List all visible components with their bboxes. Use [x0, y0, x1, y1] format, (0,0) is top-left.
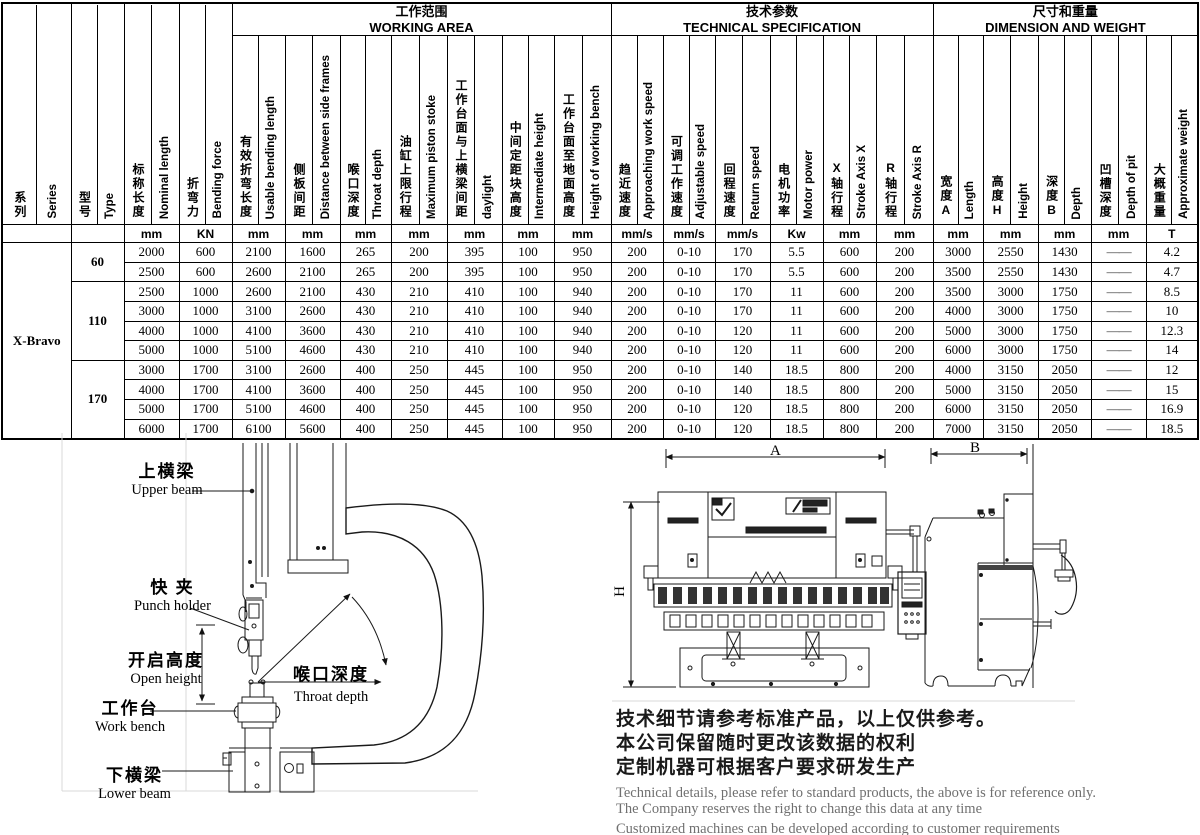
group-header-cn: 工作范围: [233, 4, 611, 20]
data-cell: 18.5: [770, 399, 823, 419]
unit-cell: mm: [232, 225, 285, 243]
header-pair: 深度BDepth: [1039, 36, 1091, 224]
type-cell: 60: [71, 243, 124, 282]
header-pair: 标称长度Nominal length: [125, 5, 179, 224]
col-header-en: daylight: [483, 175, 495, 219]
spec-table: 系列Series型号Type标称长度Nominal length折弯力Bendi…: [1, 2, 1199, 440]
data-cell: 2500: [124, 282, 179, 302]
data-cell: 2500: [124, 262, 179, 282]
data-cell: 3000: [124, 360, 179, 380]
data-cell: 5.5: [770, 262, 823, 282]
data-cell: 210: [391, 282, 447, 302]
data-cell: 11: [770, 301, 823, 321]
data-cell: 4.7: [1146, 262, 1198, 282]
data-cell: 395: [447, 262, 502, 282]
unit-cell: Kw: [770, 225, 823, 243]
data-cell: 100: [502, 380, 554, 400]
series-cell: X-Bravo: [2, 243, 71, 439]
data-cell: 410: [447, 282, 502, 302]
data-cell: 400: [340, 399, 391, 419]
data-cell: 100: [502, 301, 554, 321]
data-cell: 400: [340, 380, 391, 400]
unit-cell: mm: [285, 225, 340, 243]
data-cell: 15: [1146, 380, 1198, 400]
data-cell: 950: [554, 243, 611, 263]
data-cell: 0-10: [663, 301, 715, 321]
data-cell: 4100: [232, 380, 285, 400]
header-pair: 宽度ALength: [934, 36, 983, 224]
col-header-en: Type: [105, 193, 117, 219]
data-cell: 3100: [232, 360, 285, 380]
data-cell: 5100: [232, 399, 285, 419]
data-cell: 4000: [933, 360, 983, 380]
label-open-height-en: Open height: [126, 671, 206, 688]
col-header-cn: 折弯力: [186, 177, 199, 219]
header-pair: 凹槽深度Depth of pit: [1092, 36, 1146, 224]
group-header-en: DIMENSION AND WEIGHT: [934, 20, 1198, 36]
col-header-3: 折弯力Bending force: [179, 3, 232, 225]
unit-cell: mm/s: [663, 225, 715, 243]
unit-cell: [71, 225, 124, 243]
col-header-cn: 可调工作速度: [670, 135, 683, 219]
data-cell: 600: [179, 243, 232, 263]
data-cell: 100: [502, 282, 554, 302]
col-header-5: 侧板间距Distance between side frames: [285, 36, 340, 225]
data-cell: 3500: [933, 282, 983, 302]
col-header-en: Height: [1019, 183, 1031, 219]
data-cell: 0-10: [663, 262, 715, 282]
unit-cell: mm: [447, 225, 502, 243]
header-pair: 工作台面至地面高度Height of working bench: [555, 36, 611, 224]
data-cell: 3000: [124, 301, 179, 321]
data-cell: 1750: [1038, 321, 1091, 341]
data-cell: 2600: [232, 282, 285, 302]
col-header-cn: 深度B: [1045, 175, 1058, 219]
unit-cell: mm: [1038, 225, 1091, 243]
front-view-drawing: [623, 449, 926, 687]
data-cell: 2000: [124, 243, 179, 263]
col-header-cn: 宽度A: [939, 175, 952, 219]
data-cell: 600: [823, 282, 876, 302]
data-cell: 200: [391, 243, 447, 263]
data-cell: 170: [715, 262, 770, 282]
col-header-en: Usable bending length: [266, 96, 278, 219]
data-cell: 3000: [983, 301, 1038, 321]
unit-cell: mm: [502, 225, 554, 243]
header-pair: 系列Series: [3, 5, 71, 224]
data-cell: 170: [715, 243, 770, 263]
label-work-bench-en: Work bench: [95, 719, 165, 736]
data-cell: 1750: [1038, 341, 1091, 361]
dim-h-label: H: [612, 586, 629, 597]
label-work-bench: 工作台 Work bench: [95, 694, 165, 736]
data-cell: 6000: [933, 341, 983, 361]
data-cell: ——: [1091, 243, 1146, 263]
col-header-cn: 工作台面至地面高度: [562, 93, 575, 219]
data-cell: 3150: [983, 360, 1038, 380]
data-cell: 5000: [124, 341, 179, 361]
data-cell: 200: [876, 243, 933, 263]
clamp-teeth: [658, 587, 889, 604]
data-cell: 18.5: [770, 380, 823, 400]
data-cell: 4000: [933, 301, 983, 321]
col-header-14: 电机功率Motor power: [770, 36, 823, 225]
group-header-0: 工作范围WORKING AREA: [232, 3, 611, 36]
group-header-cn: 技术参数: [612, 4, 933, 20]
data-cell: 200: [611, 399, 663, 419]
data-cell: 3600: [285, 380, 340, 400]
dim-b-label: B: [970, 440, 980, 457]
data-cell: 5.5: [770, 243, 823, 263]
col-header-cn: 型号: [78, 191, 91, 219]
data-cell: 100: [502, 321, 554, 341]
data-cell: 14: [1146, 341, 1198, 361]
data-cell: 2050: [1038, 399, 1091, 419]
col-header-cn: R轴行程: [884, 161, 897, 219]
note-cn-line: 本公司保留随时更改该数据的权利: [616, 732, 1096, 756]
col-header-en: Series: [48, 184, 60, 219]
col-header-21: 大概重量Approximate weight: [1146, 36, 1198, 225]
data-cell: 210: [391, 321, 447, 341]
data-cell: 430: [340, 301, 391, 321]
data-cell: 4000: [124, 380, 179, 400]
data-cell: 200: [611, 341, 663, 361]
data-cell: 2100: [285, 282, 340, 302]
header-pair: 高度HHeight: [984, 36, 1038, 224]
label-lower-beam-cn: 下横梁: [97, 761, 172, 786]
unit-cell: mm: [391, 225, 447, 243]
unit-cell: mm: [124, 225, 179, 243]
side-view-drawing: [925, 444, 1076, 688]
col-header-10: 工作台面至地面高度Height of working bench: [554, 36, 611, 225]
col-header-15: X轴行程Stroke Axis X: [823, 36, 876, 225]
label-punch-holder-en: Punch holder: [130, 598, 215, 615]
header-pair: 油缸上限行程Maximum piston stoke: [392, 36, 447, 224]
header-pair: 可调工作速度Adjustable speed: [664, 36, 715, 224]
group-header-en: TECHNICAL SPECIFICATION: [612, 20, 933, 36]
col-header-6: 喉口深度Throat depth: [340, 36, 391, 225]
note-cn-line: 定制机器可根据客户要求研发生产: [616, 756, 1096, 780]
header-pair: 侧板间距Distance between side frames: [286, 36, 340, 224]
data-cell: 140: [715, 360, 770, 380]
data-cell: 200: [611, 321, 663, 341]
label-lower-beam-en: Lower beam: [97, 786, 172, 803]
data-cell: 4100: [232, 321, 285, 341]
data-cell: 210: [391, 301, 447, 321]
data-cell: 100: [502, 262, 554, 282]
data-cell: 5100: [232, 341, 285, 361]
data-cell: 4600: [285, 399, 340, 419]
data-cell: 410: [447, 321, 502, 341]
label-throat-depth-cn: 喉口深度: [288, 660, 374, 685]
col-header-cn: 回程速度: [722, 163, 735, 219]
col-header-13: 回程速度Return speed: [715, 36, 770, 225]
label-punch-holder: 快 夹 Punch holder: [130, 573, 215, 615]
unit-cell: T: [1146, 225, 1198, 243]
data-cell: 600: [823, 262, 876, 282]
data-cell: 200: [876, 380, 933, 400]
data-cell: 940: [554, 301, 611, 321]
data-cell: 3150: [983, 380, 1038, 400]
col-header-cn: 有效折弯长度: [239, 135, 252, 219]
data-cell: 0-10: [663, 341, 715, 361]
data-cell: 1000: [179, 301, 232, 321]
col-header-en: Adjustable speed: [696, 124, 708, 219]
col-header-cn: 侧板间距: [292, 163, 305, 219]
data-cell: 3500: [933, 262, 983, 282]
data-cell: 3000: [983, 321, 1038, 341]
col-header-en: Return speed: [751, 146, 763, 220]
data-cell: 3600: [285, 321, 340, 341]
col-header-en: Depth of pit: [1127, 155, 1139, 219]
data-cell: 1750: [1038, 282, 1091, 302]
col-header-16: R轴行程Stroke Axis R: [876, 36, 933, 225]
data-cell: 12: [1146, 360, 1198, 380]
col-header-cn: 高度H: [991, 175, 1004, 219]
data-cell: 2100: [232, 243, 285, 263]
label-throat-depth: 喉口深度 Throat depth: [288, 660, 374, 706]
data-cell: 12.3: [1146, 321, 1198, 341]
data-cell: 3150: [983, 399, 1038, 419]
data-cell: 250: [391, 360, 447, 380]
unit-cell: mm: [983, 225, 1038, 243]
note-cn-line: 技术细节请参考标准产品，以上仅供参考。: [616, 708, 1096, 732]
unit-cell: mm: [823, 225, 876, 243]
data-cell: 100: [502, 243, 554, 263]
data-cell: 2550: [983, 243, 1038, 263]
header-pair: 喉口深度Throat depth: [341, 36, 391, 224]
dim-a-label: A: [770, 443, 781, 460]
col-header-en: Approaching work speed: [644, 82, 656, 219]
data-cell: 265: [340, 262, 391, 282]
data-cell: 950: [554, 380, 611, 400]
data-cell: 410: [447, 341, 502, 361]
col-header-cn: 油缸上限行程: [399, 135, 412, 219]
col-header-en: Height of working bench: [591, 85, 603, 219]
col-header-0: 系列Series: [2, 3, 71, 225]
note-en-line: Technical details, please refer to stand…: [616, 785, 1096, 801]
col-header-en: Stroke Axis X: [857, 145, 869, 219]
data-cell: 1430: [1038, 262, 1091, 282]
data-cell: 11: [770, 321, 823, 341]
col-header-cn: 标称长度: [131, 163, 144, 219]
col-header-cn: 喉口深度: [346, 163, 359, 219]
unit-cell: [2, 225, 71, 243]
col-header-en: Approximate weight: [1179, 109, 1191, 219]
data-cell: 5000: [933, 380, 983, 400]
lower-clamp-teeth: [670, 615, 872, 627]
data-cell: 0-10: [663, 282, 715, 302]
data-cell: 100: [502, 341, 554, 361]
col-header-en: Intermediate height: [535, 113, 547, 219]
data-cell: 120: [715, 341, 770, 361]
col-header-cn: 系列: [13, 191, 26, 219]
data-cell: 100: [502, 360, 554, 380]
unit-cell: mm: [933, 225, 983, 243]
col-header-1: 型号Type: [71, 3, 124, 225]
col-header-11: 趋近速度Approaching work speed: [611, 36, 663, 225]
data-cell: 940: [554, 341, 611, 361]
data-cell: 200: [876, 341, 933, 361]
data-cell: ——: [1091, 321, 1146, 341]
data-cell: 200: [876, 262, 933, 282]
data-cell: ——: [1091, 399, 1146, 419]
header-pair: 回程速度Return speed: [716, 36, 770, 224]
data-cell: 1000: [179, 341, 232, 361]
group-header-2: 尺寸和重量DIMENSION AND WEIGHT: [933, 3, 1198, 36]
data-cell: 430: [340, 341, 391, 361]
data-cell: ——: [1091, 380, 1146, 400]
data-cell: 4000: [124, 321, 179, 341]
data-cell: 600: [823, 341, 876, 361]
data-cell: 4.2: [1146, 243, 1198, 263]
data-cell: 16.9: [1146, 399, 1198, 419]
col-header-en: Throat depth: [373, 149, 385, 219]
data-cell: 120: [715, 321, 770, 341]
data-cell: ——: [1091, 262, 1146, 282]
label-throat-depth-en: Throat depth: [288, 689, 374, 706]
data-cell: 940: [554, 282, 611, 302]
data-cell: 3100: [232, 301, 285, 321]
data-cell: 120: [715, 399, 770, 419]
data-cell: 4600: [285, 341, 340, 361]
label-open-height: 开启高度 Open height: [126, 646, 206, 688]
data-cell: 200: [611, 380, 663, 400]
col-header-cn: X轴行程: [830, 161, 843, 219]
col-header-8: 工作台面与上横梁间距daylight: [447, 36, 502, 225]
data-cell: 200: [876, 360, 933, 380]
data-cell: 430: [340, 321, 391, 341]
label-open-height-cn: 开启高度: [126, 646, 206, 671]
data-cell: 600: [823, 301, 876, 321]
col-header-12: 可调工作速度Adjustable speed: [663, 36, 715, 225]
data-cell: 140: [715, 380, 770, 400]
col-header-en: Maximum piston stoke: [427, 95, 439, 219]
data-cell: 200: [611, 262, 663, 282]
col-header-9: 中间定距块高度Intermediate height: [502, 36, 554, 225]
data-cell: 200: [611, 301, 663, 321]
header-pair: R轴行程Stroke Axis R: [877, 36, 933, 224]
data-cell: 1750: [1038, 301, 1091, 321]
col-header-en: Motor power: [804, 150, 816, 219]
data-cell: 940: [554, 321, 611, 341]
header-pair: 趋近速度Approaching work speed: [612, 36, 663, 224]
data-cell: 170: [715, 301, 770, 321]
unit-cell: mm: [340, 225, 391, 243]
data-cell: ——: [1091, 360, 1146, 380]
data-cell: 445: [447, 399, 502, 419]
unit-cell: KN: [179, 225, 232, 243]
col-header-cn: 中间定距块高度: [509, 121, 522, 219]
label-lower-beam: 下横梁 Lower beam: [97, 761, 172, 803]
label-work-bench-cn: 工作台: [95, 694, 165, 719]
data-cell: 200: [611, 243, 663, 263]
col-header-en: Stroke Axis R: [913, 145, 925, 219]
data-cell: 100: [502, 399, 554, 419]
data-cell: 600: [823, 243, 876, 263]
col-header-cn: 工作台面与上横梁间距: [454, 79, 467, 219]
unit-cell: mm: [1091, 225, 1146, 243]
data-cell: 400: [340, 360, 391, 380]
data-cell: 200: [876, 399, 933, 419]
data-cell: 1700: [179, 380, 232, 400]
col-header-cn: 趋近速度: [618, 163, 631, 219]
data-cell: 2550: [983, 262, 1038, 282]
data-cell: 0-10: [663, 321, 715, 341]
col-header-en: Distance between side frames: [321, 55, 333, 219]
data-cell: 3000: [983, 341, 1038, 361]
data-cell: 0-10: [663, 399, 715, 419]
data-cell: 18.5: [770, 360, 823, 380]
header-pair: 中间定距块高度Intermediate height: [503, 36, 554, 224]
data-cell: 445: [447, 380, 502, 400]
data-cell: 800: [823, 380, 876, 400]
data-cell: 265: [340, 243, 391, 263]
col-header-7: 油缸上限行程Maximum piston stoke: [391, 36, 447, 225]
data-cell: 250: [391, 399, 447, 419]
col-header-19: 深度BDepth: [1038, 36, 1091, 225]
data-cell: 1000: [179, 282, 232, 302]
data-cell: 200: [876, 321, 933, 341]
type-cell: 110: [71, 282, 124, 360]
data-cell: 1430: [1038, 243, 1091, 263]
data-cell: 800: [823, 399, 876, 419]
data-cell: ——: [1091, 301, 1146, 321]
data-cell: ——: [1091, 341, 1146, 361]
data-cell: 8.5: [1146, 282, 1198, 302]
header-pair: 电机功率Motor power: [771, 36, 823, 224]
data-cell: 950: [554, 262, 611, 282]
data-cell: 950: [554, 399, 611, 419]
data-cell: 6000: [933, 399, 983, 419]
col-header-2: 标称长度Nominal length: [124, 3, 179, 225]
data-cell: 1700: [179, 360, 232, 380]
unit-cell: mm: [554, 225, 611, 243]
data-cell: 2100: [285, 262, 340, 282]
group-header-cn: 尺寸和重量: [934, 4, 1198, 20]
data-cell: 600: [823, 321, 876, 341]
data-cell: 250: [391, 380, 447, 400]
col-header-17: 宽度ALength: [933, 36, 983, 225]
col-header-en: Nominal length: [160, 136, 172, 219]
data-cell: 200: [876, 282, 933, 302]
label-upper-beam: 上横梁 Upper beam: [127, 457, 207, 499]
data-cell: 3000: [933, 243, 983, 263]
label-upper-beam-cn: 上横梁: [127, 457, 207, 482]
group-header-en: WORKING AREA: [233, 20, 611, 36]
label-upper-beam-en: Upper beam: [127, 482, 207, 499]
col-header-cn: 凹槽深度: [1099, 163, 1112, 219]
data-cell: 800: [823, 360, 876, 380]
notes-block: 技术细节请参考标准产品，以上仅供参考。 本公司保留随时更改该数据的权利 定制机器…: [616, 708, 1096, 835]
col-header-cn: 大概重量: [1153, 163, 1166, 219]
data-cell: 410: [447, 301, 502, 321]
data-cell: 430: [340, 282, 391, 302]
label-punch-holder-cn: 快 夹: [130, 573, 215, 598]
group-header-1: 技术参数TECHNICAL SPECIFICATION: [611, 3, 933, 36]
data-cell: 1000: [179, 321, 232, 341]
data-cell: 11: [770, 341, 823, 361]
data-cell: 200: [391, 262, 447, 282]
data-cell: 0-10: [663, 360, 715, 380]
header-pair: X轴行程Stroke Axis X: [824, 36, 876, 224]
header-pair: 有效折弯长度Usable bending length: [233, 36, 285, 224]
data-cell: 0-10: [663, 243, 715, 263]
unit-cell: mm: [876, 225, 933, 243]
col-header-cn: 电机功率: [777, 163, 790, 219]
data-cell: 950: [554, 360, 611, 380]
col-header-en: Length: [965, 181, 977, 219]
